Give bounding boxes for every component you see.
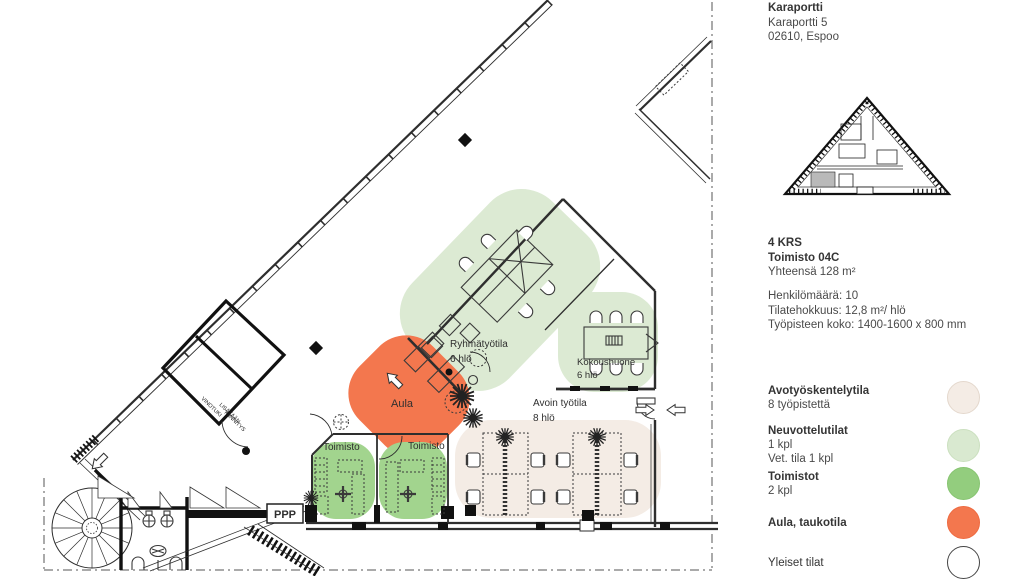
column-marker [458, 133, 472, 147]
floor-plan: VINOTUKI LISÄTÄÄN KIINNITYS [0, 0, 756, 576]
meeting-room-label: Kokoushuone [577, 357, 635, 368]
legend-item-open-work: Avotyöskentelytila 8 työpistettä [768, 381, 980, 414]
metric-efficiency: Tilatehokkuus: 12,8 m²/ hlö [768, 304, 1018, 319]
legend-item-meeting: Neuvottelutilat 1 kpl Vet. tila 1 kpl [768, 424, 980, 466]
entry-arrow-left [667, 405, 685, 416]
legend-line: 1 kpl [768, 438, 848, 452]
open-office-capacity: 8 hlö [533, 413, 555, 424]
legend-title: Toimistot [768, 470, 819, 484]
legend-swatch-meeting [947, 429, 980, 462]
ppp-label: PPP [274, 509, 296, 521]
metric-workstation-size: Työpisteen koko: 1400-1600 x 800 mm [768, 318, 1018, 333]
office-2-label: Toimisto [408, 441, 445, 452]
meeting-room-zone [558, 292, 658, 392]
legend-title: Avotyöskentelytila [768, 384, 869, 398]
legend-item-lobby: Aula, taukotila [768, 506, 980, 539]
unit-floor: 4 KRS [768, 236, 1018, 251]
unit-name: Toimisto 04C [768, 251, 1018, 266]
column-marker [309, 341, 323, 355]
corner-arrow [88, 451, 109, 472]
legend-swatch-open-work [947, 381, 980, 414]
legend-title: Yleiset tilat [768, 556, 824, 570]
legend-swatch-offices [947, 467, 980, 500]
building-minimap [781, 94, 953, 202]
legend-title: Aula, taukotila [768, 516, 847, 530]
upper-wing-walls [563, 37, 711, 199]
service-core: PPP [52, 470, 324, 572]
meeting-room-capacity: 6 hlö [577, 370, 598, 381]
legend-swatch-lobby [947, 506, 980, 539]
open-office-label: Avoin työtila [533, 398, 587, 409]
building-street: Karaportti 5 [768, 16, 1018, 31]
building-header: Karaportti Karaportti 5 02610, Espoo [768, 1, 1018, 45]
building-city: 02610, Espoo [768, 30, 1018, 45]
legend-line: 2 kpl [768, 484, 819, 498]
unit-metrics: Henkilömäärä: 10 Tilatehokkuus: 12,8 m²/… [768, 289, 1018, 333]
legend-item-offices: Toimistot 2 kpl [768, 467, 980, 500]
unit-total-area: Yhteensä 128 m² [768, 265, 1018, 280]
legend-swatch-general [947, 546, 980, 579]
hall-table [334, 415, 349, 430]
lobby-label: Aula [391, 398, 414, 410]
building-name: Karaportti [768, 1, 1018, 16]
unit-info: 4 KRS Toimisto 04C Yhteensä 128 m² [768, 236, 1018, 280]
technical-rooms: VINOTUKI LISÄTÄÄN KIINNITYS [163, 301, 284, 455]
metric-headcount: Henkilömäärä: 10 [768, 289, 1018, 304]
stair-ramp: PPP [143, 487, 324, 572]
exit-arrow-right [636, 405, 654, 416]
legend-item-general: Yleiset tilat [768, 546, 980, 579]
office-1-label: Toimisto [323, 442, 360, 453]
legend-title: Neuvottelutilat [768, 424, 848, 438]
office-2-zone [379, 442, 447, 519]
legend-line: Vet. tila 1 kpl [768, 452, 848, 466]
office-1-zone [311, 442, 375, 519]
group-room-capacity: 6 hlö [450, 354, 472, 365]
group-room-label: Ryhmätyötila [450, 339, 508, 350]
legend-line: 8 työpistettä [768, 398, 869, 412]
